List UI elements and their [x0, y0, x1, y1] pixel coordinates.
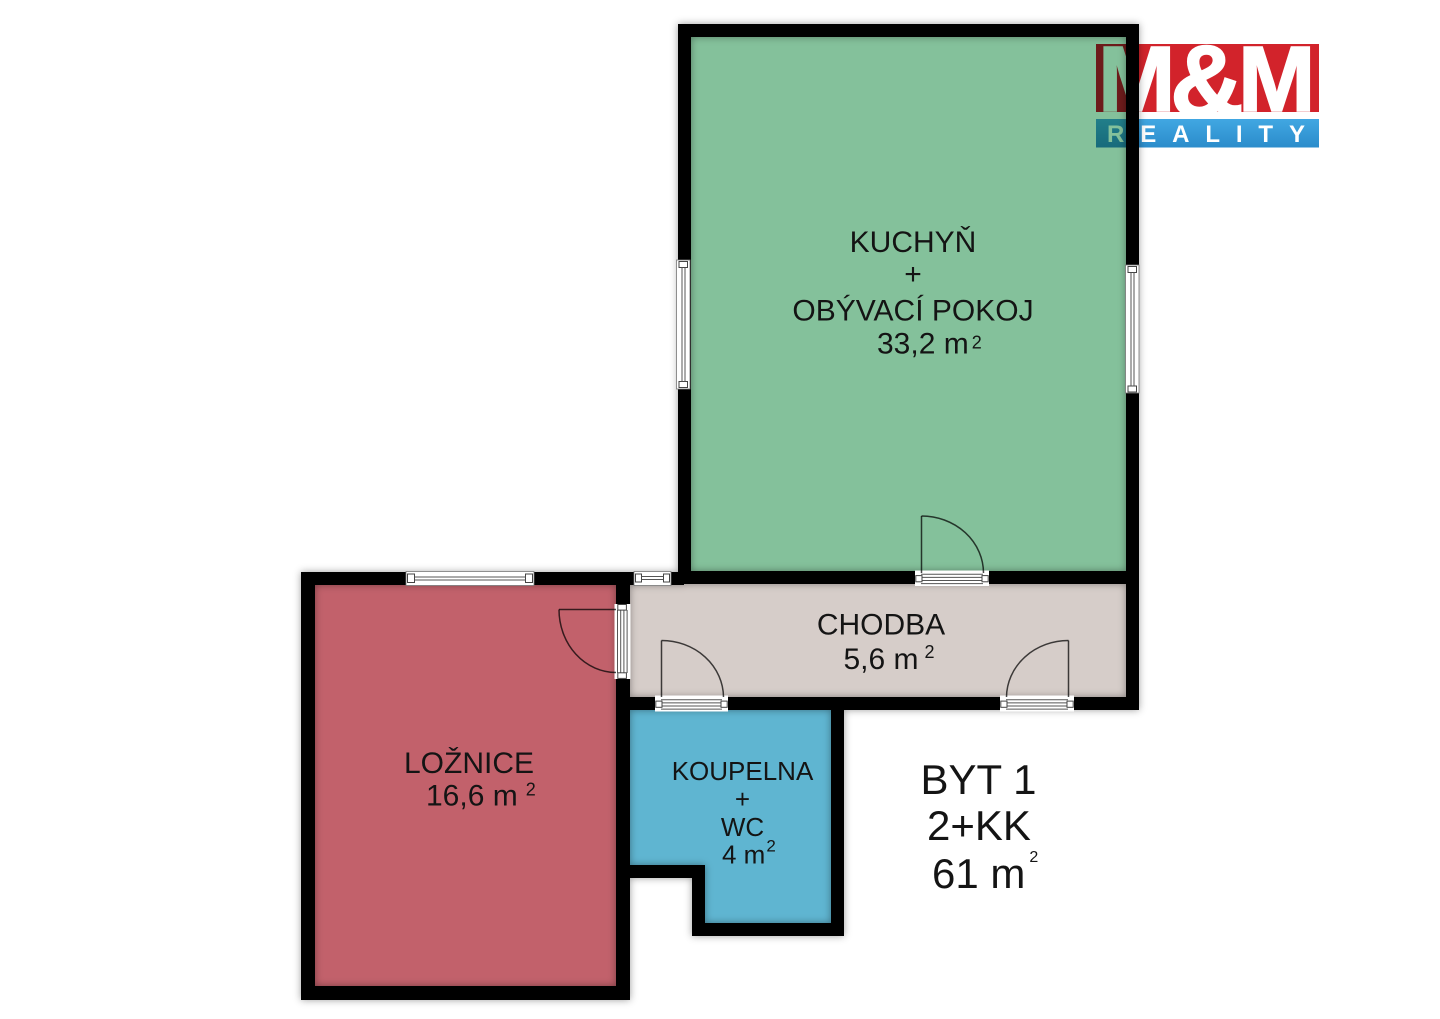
svg-text:61 m2: 61 m2: [932, 849, 1038, 897]
svg-text:33,2 m2: 33,2 m2: [877, 328, 982, 361]
svg-text:KUCHYŇ: KUCHYŇ: [850, 226, 977, 259]
svg-text:OBÝVACÍ POKOJ: OBÝVACÍ POKOJ: [792, 295, 1033, 328]
svg-text:2+KK: 2+KK: [927, 802, 1031, 849]
svg-text:CHODBA: CHODBA: [817, 609, 945, 642]
svg-text:+: +: [904, 258, 922, 291]
svg-text:BYT 1: BYT 1: [921, 756, 1037, 803]
svg-text:M: M: [1098, 27, 1175, 131]
svg-text:WC: WC: [721, 812, 764, 842]
svg-text:KOUPELNA: KOUPELNA: [672, 756, 814, 786]
svg-text:M: M: [1238, 27, 1315, 131]
svg-text:LOŽNICE: LOŽNICE: [404, 747, 534, 780]
svg-text:+: +: [735, 784, 750, 814]
